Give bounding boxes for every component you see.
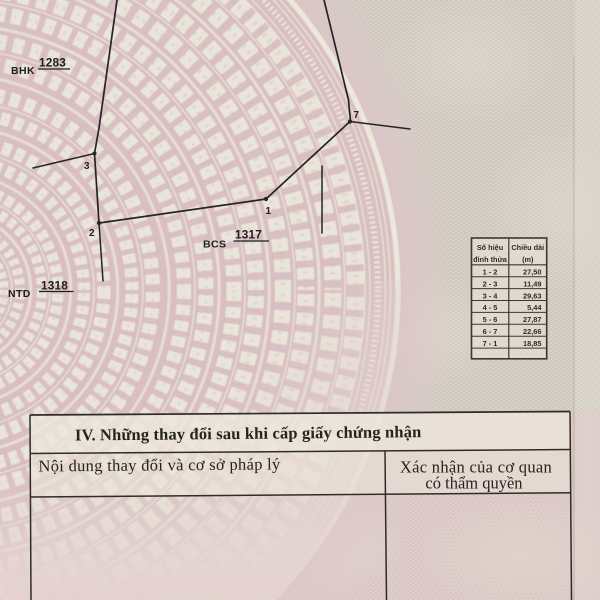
- svg-text:1 - 2: 1 - 2: [483, 268, 498, 277]
- svg-text:29,63: 29,63: [523, 291, 542, 300]
- svg-text:BHK: BHK: [11, 65, 35, 77]
- svg-text:27,87: 27,87: [523, 315, 542, 324]
- svg-text:1317: 1317: [235, 228, 262, 242]
- svg-text:27,50: 27,50: [523, 268, 542, 277]
- svg-text:11,49: 11,49: [523, 279, 541, 288]
- svg-text:2 - 3: 2 - 3: [483, 279, 498, 288]
- svg-text:1283: 1283: [39, 56, 66, 70]
- svg-text:4 - 5: 4 - 5: [483, 303, 498, 312]
- svg-text:3: 3: [84, 161, 90, 172]
- svg-text:Số hiệu: Số hiệu: [477, 243, 503, 252]
- svg-text:đỉnh thửa: đỉnh thửa: [473, 255, 508, 264]
- svg-text:7 - 1: 7 - 1: [483, 339, 498, 348]
- svg-text:NTD: NTD: [8, 288, 31, 300]
- svg-text:Chiều dài: Chiều dài: [511, 243, 544, 252]
- svg-text:có thẩm quyền: có thẩm quyền: [425, 474, 522, 493]
- svg-text:7: 7: [354, 110, 360, 121]
- svg-text:Nội dung thay đổi và cơ sở phá: Nội dung thay đổi và cơ sở pháp lý: [38, 454, 281, 475]
- svg-text:5,44: 5,44: [527, 303, 542, 312]
- svg-text:3 - 4: 3 - 4: [483, 291, 499, 300]
- svg-text:18,85: 18,85: [523, 339, 542, 348]
- svg-text:BCS: BCS: [203, 239, 226, 251]
- svg-text:22,66: 22,66: [523, 327, 542, 336]
- svg-text:6 - 7: 6 - 7: [483, 327, 498, 336]
- svg-text:(m): (m): [522, 255, 534, 264]
- svg-text:1: 1: [266, 206, 272, 217]
- svg-text:1318: 1318: [41, 279, 68, 293]
- svg-text:2: 2: [89, 228, 95, 239]
- svg-text:IV. Những thay đổi sau khi cấp: IV. Những thay đổi sau khi cấp giấy chứn…: [75, 422, 422, 444]
- svg-text:5 - 6: 5 - 6: [483, 315, 498, 324]
